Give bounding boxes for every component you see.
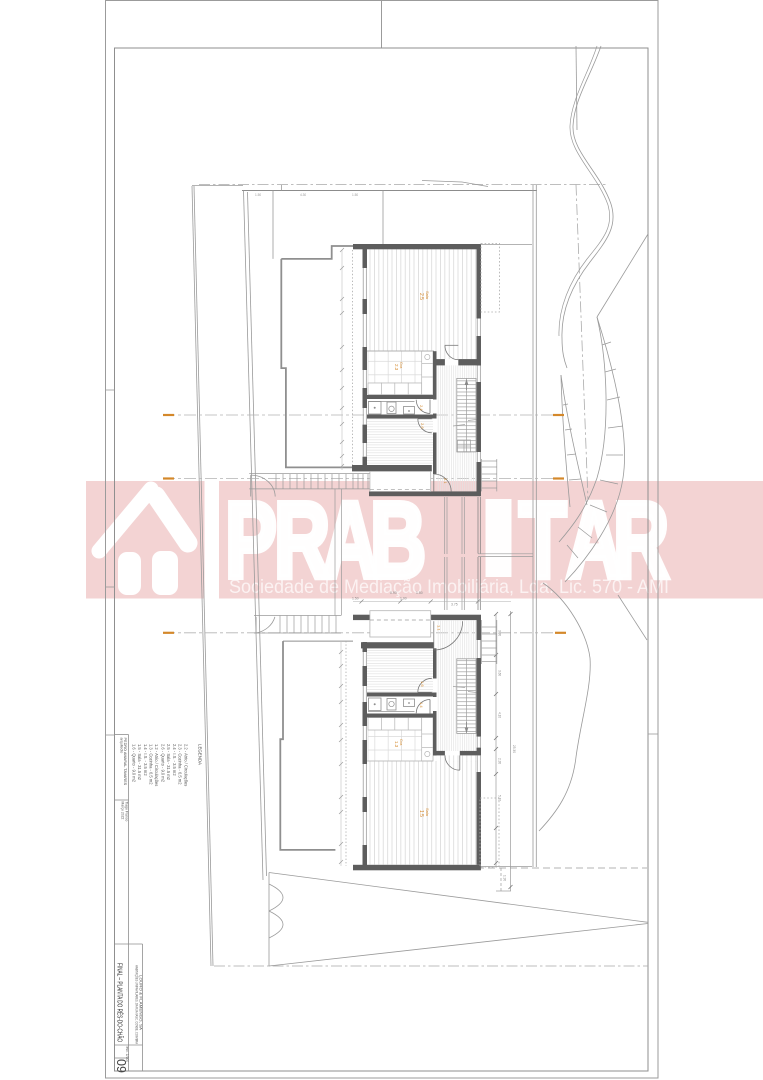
svg-text:2.5 - Sala - 31.5 m2: 2.5 - Sala - 31.5 m2 [166, 744, 171, 781]
svg-text:4.10: 4.10 [498, 712, 502, 718]
svg-text:2.6: 2.6 [420, 423, 425, 429]
svg-text:4.30: 4.30 [300, 193, 306, 197]
svg-text:Sociedade de Mediação Imobiliá: Sociedade de Mediação Imobiliária, Lda. … [229, 576, 669, 598]
svg-text:3.75: 3.75 [451, 603, 458, 607]
svg-text:Sala: Sala [425, 808, 430, 817]
svg-text:1.3 - Cozinha - 6.5 m2: 1.3 - Cozinha - 6.5 m2 [149, 744, 154, 785]
svg-text:arquitecto: arquitecto [120, 738, 124, 754]
svg-text:2.30: 2.30 [498, 758, 502, 764]
svg-text:1.1: 1.1 [437, 625, 442, 631]
svg-text:LEGENDA: LEGENDA [198, 744, 203, 765]
svg-text:Coz.: Coz. [399, 362, 403, 369]
svg-text:1.50: 1.50 [416, 591, 423, 595]
svg-text:1.4: 1.4 [419, 702, 424, 708]
svg-text:1.5: 1.5 [418, 810, 424, 817]
svg-text:PEDRO AMARAL TAVARES: PEDRO AMARAL TAVARES [123, 738, 127, 786]
svg-text:Coz.: Coz. [399, 739, 403, 746]
svg-text:2.2 - Atrio / Circulações: 2.2 - Atrio / Circulações [183, 744, 188, 786]
svg-text:LOURO & FLAMENGO, SA: LOURO & FLAMENGO, SA [139, 975, 143, 1031]
svg-text:1.50: 1.50 [352, 597, 359, 601]
svg-text:2.4 - I.S. - 3.5 m2: 2.4 - I.S. - 3.5 m2 [172, 744, 177, 776]
svg-text:1.5 - Sala - 31.5 m2: 1.5 - Sala - 31.5 m2 [137, 744, 142, 781]
svg-text:2.6 - Quarto - 9.0 m2: 2.6 - Quarto - 9.0 m2 [161, 744, 166, 783]
svg-text:1.50: 1.50 [255, 193, 261, 197]
svg-text:1.3: 1.3 [394, 741, 399, 748]
svg-text:1.2 - Atrio / Circulações: 1.2 - Atrio / Circulações [154, 744, 159, 786]
svg-text:1.00: 1.00 [400, 597, 407, 601]
svg-text:Tiago Franco: Tiago Franco [125, 802, 129, 822]
svg-text:3.60: 3.60 [498, 670, 502, 676]
svg-text:2.5: 2.5 [418, 293, 424, 300]
svg-text:2.4: 2.4 [419, 405, 424, 411]
svg-text:25.30: 25.30 [512, 745, 516, 753]
svg-text:Sala: Sala [425, 291, 430, 300]
svg-text:1.4 - I.S. - 3.5 m2: 1.4 - I.S. - 3.5 m2 [143, 744, 148, 776]
svg-text:09: 09 [114, 1059, 128, 1073]
svg-text:1.90: 1.90 [503, 875, 507, 881]
svg-text:3.90: 3.90 [498, 630, 502, 636]
svg-text:1.50: 1.50 [352, 193, 358, 197]
svg-text:0.90: 0.90 [390, 591, 397, 595]
svg-text:1.6 - Quarto - 9.0 m2: 1.6 - Quarto - 9.0 m2 [131, 744, 136, 783]
svg-text:1.6: 1.6 [420, 681, 425, 687]
svg-text:FINAL – PLANTA DO RÉS-DO-CHÃO: FINAL – PLANTA DO RÉS-DO-CHÃO [115, 963, 124, 1042]
svg-text:2.3 - Cozinha - 6.5 m2: 2.3 - Cozinha - 6.5 m2 [178, 744, 183, 785]
svg-text:Março 2022: Março 2022 [121, 802, 125, 820]
svg-text:2.1: 2.1 [443, 478, 448, 484]
svg-text:2.3: 2.3 [394, 364, 399, 371]
